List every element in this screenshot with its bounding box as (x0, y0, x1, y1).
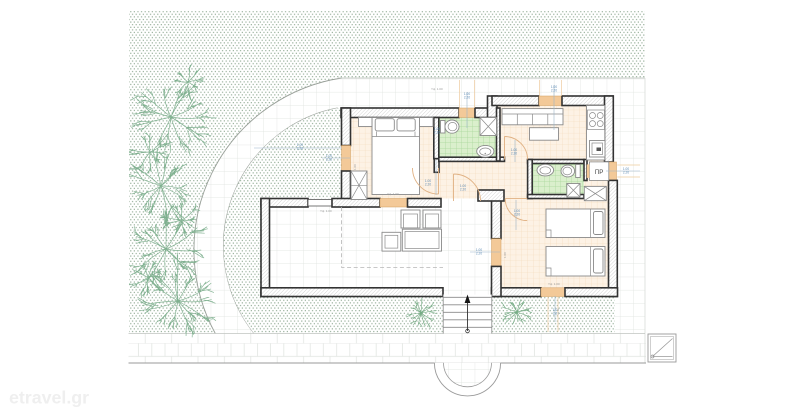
svg-text:2.20: 2.20 (553, 311, 559, 315)
svg-text:Υψ. 1.00: Υψ. 1.00 (548, 282, 560, 286)
svg-text:etravel.gr: etravel.gr (9, 388, 89, 408)
svg-text:Υψ. 1.00: Υψ. 1.00 (431, 87, 443, 91)
svg-text:Υψ. 1.00: Υψ. 1.00 (387, 192, 399, 196)
svg-text:2.20: 2.20 (297, 146, 303, 150)
svg-text:Υψ. 1.00: Υψ. 1.00 (320, 209, 332, 213)
svg-text:1.00: 1.00 (353, 164, 357, 170)
svg-text:2.20: 2.20 (514, 212, 520, 216)
svg-text:2.20: 2.20 (326, 157, 332, 161)
svg-text:2.20: 2.20 (476, 251, 482, 255)
svg-text:2.20: 2.20 (425, 182, 431, 186)
svg-text:2.20: 2.20 (434, 130, 440, 134)
svg-text:1.00: 1.00 (503, 252, 507, 258)
svg-text:2.20: 2.20 (511, 151, 517, 155)
svg-text:2.20: 2.20 (623, 170, 629, 174)
svg-text:2.20: 2.20 (551, 88, 557, 92)
svg-text:ΠΡ: ΠΡ (595, 169, 604, 176)
svg-text:2.20: 2.20 (464, 95, 470, 99)
svg-text:2.20: 2.20 (460, 187, 466, 191)
